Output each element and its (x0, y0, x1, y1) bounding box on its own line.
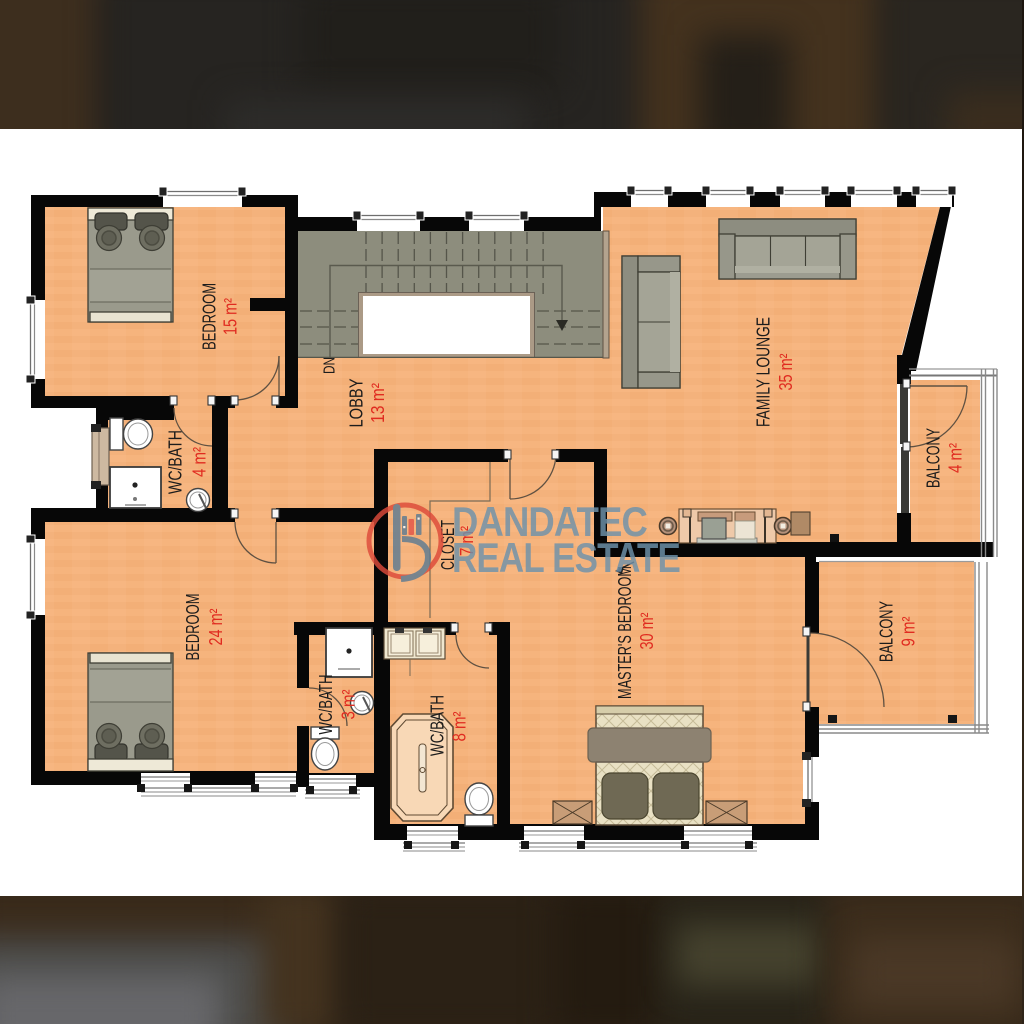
svg-text:FAMILY LOUNGE: FAMILY LOUNGE (754, 317, 774, 427)
svg-text:9 m²: 9 m² (899, 616, 919, 646)
svg-text:15 m²: 15 m² (221, 298, 241, 335)
svg-text:REAL ESTATE: REAL ESTATE (452, 534, 680, 581)
svg-text:BALCONY: BALCONY (924, 428, 944, 488)
svg-text:24 m²: 24 m² (206, 608, 226, 645)
svg-text:35 m²: 35 m² (776, 353, 796, 390)
svg-text:13 m²: 13 m² (368, 383, 388, 423)
svg-text:WC/BATH: WC/BATH (428, 695, 448, 756)
svg-text:DN: DN (322, 357, 339, 374)
svg-text:4 m²: 4 m² (946, 443, 966, 473)
svg-text:BALCONY: BALCONY (877, 601, 897, 662)
svg-text:BEDROOM: BEDROOM (183, 594, 203, 661)
svg-text:4 m²: 4 m² (190, 447, 210, 477)
svg-text:BEDROOM: BEDROOM (200, 283, 220, 350)
svg-text:WC/BATH: WC/BATH (316, 675, 336, 735)
svg-text:MASTER'S BEDROOM: MASTER'S BEDROOM (615, 566, 635, 699)
svg-text:30 m²: 30 m² (637, 612, 657, 649)
svg-text:WC/BATH: WC/BATH (166, 430, 186, 494)
svg-text:3 m²: 3 m² (339, 689, 359, 719)
svg-text:8 m²: 8 m² (450, 711, 470, 741)
svg-text:LOBBY: LOBBY (347, 379, 367, 428)
